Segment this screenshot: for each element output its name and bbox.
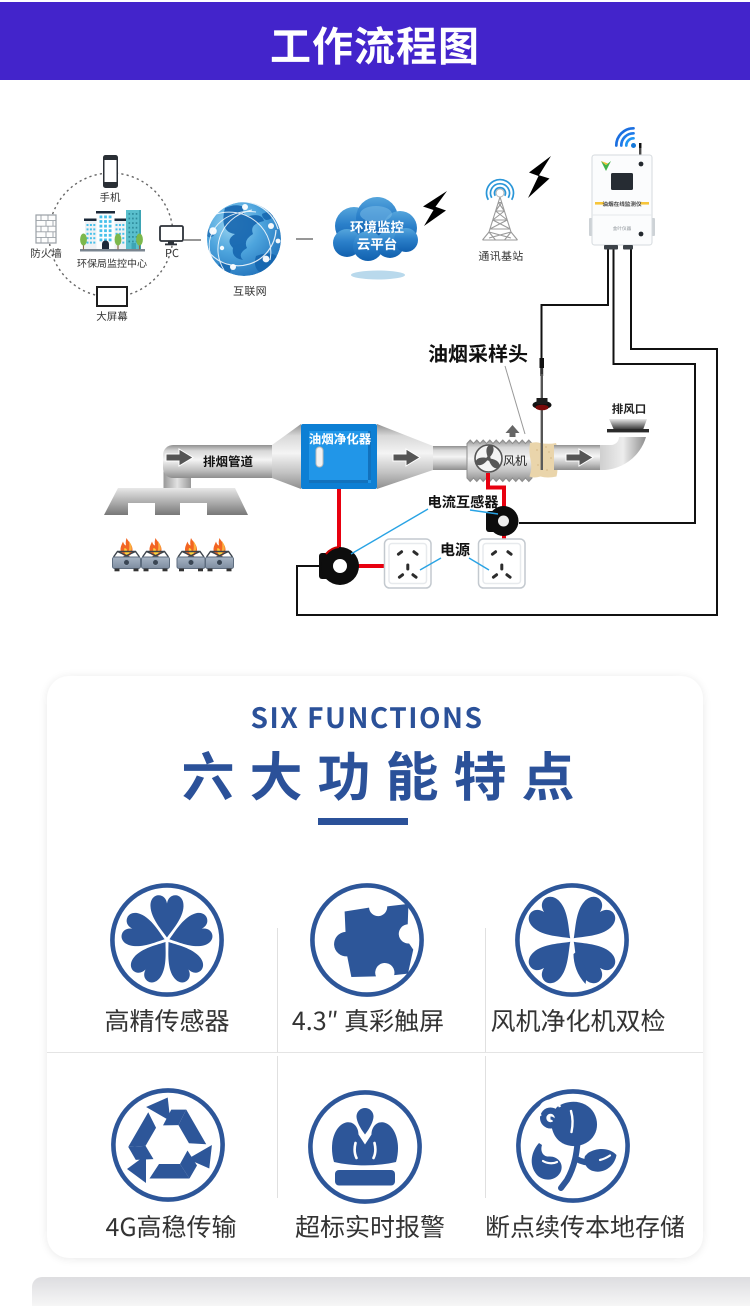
svg-text:油烟采样头: 油烟采样头 [428,338,528,367]
svg-text:电流互感器: 电流互感器 [428,492,499,512]
svg-text:油烟净化器: 油烟净化器 [309,429,372,448]
svg-text:PC: PC [165,245,179,261]
svg-text:通讯基站: 通讯基站 [478,248,523,264]
svg-text:手机: 手机 [100,190,121,205]
svg-text:风机: 风机 [503,452,527,469]
svg-text:电源: 电源 [440,539,470,560]
svg-text:云平台: 云平台 [357,233,398,253]
svg-text:环保局监控中心: 环保局监控中心 [77,255,147,270]
svg-text:互联网: 互联网 [233,283,267,299]
svg-text:金叶仪器: 金叶仪器 [613,226,632,232]
svg-text:大屏幕: 大屏幕 [96,309,128,324]
svg-text:油烟在线监测仪: 油烟在线监测仪 [602,200,642,208]
svg-text:排风口: 排风口 [612,401,647,417]
svg-text:排烟管道: 排烟管道 [203,451,254,470]
svg-text:防火墙: 防火墙 [30,246,62,261]
